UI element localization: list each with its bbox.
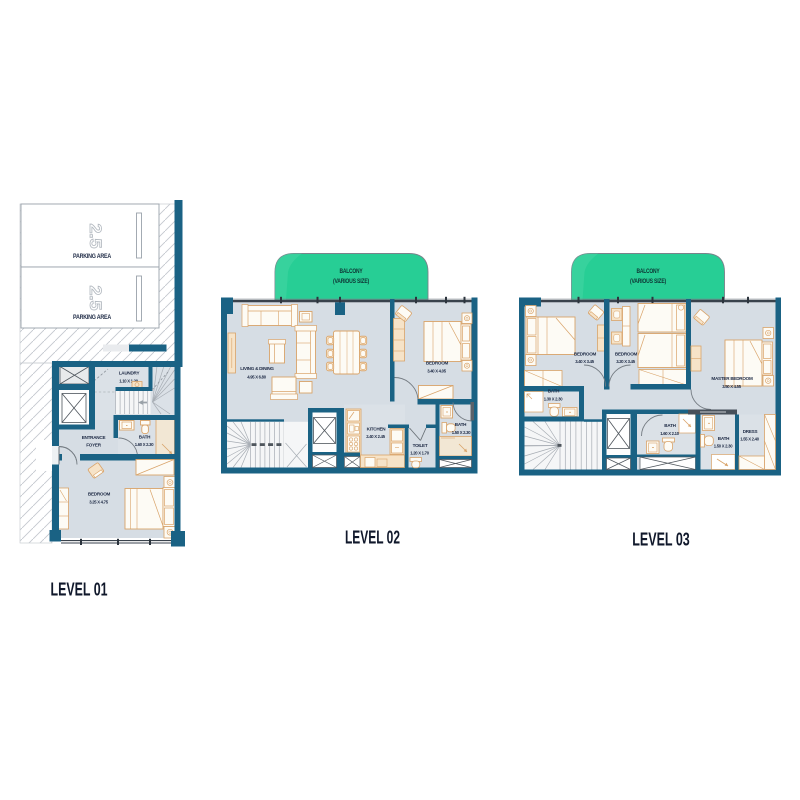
svg-text:TOILET: TOILET <box>413 443 428 448</box>
svg-text:3.20 X 3.45: 3.20 X 3.45 <box>616 359 635 364</box>
svg-text:1.55 X 2.40: 1.55 X 2.40 <box>740 437 759 442</box>
svg-text:LEVEL 01: LEVEL 01 <box>51 580 108 600</box>
svg-text:BATH: BATH <box>548 389 560 394</box>
svg-text:LEVEL 02: LEVEL 02 <box>345 528 400 548</box>
svg-text:(VARIOUS SIZE): (VARIOUS SIZE) <box>333 278 369 285</box>
svg-text:KITCHEN: KITCHEN <box>367 427 387 432</box>
svg-text:2.40 X 2.45: 2.40 X 2.45 <box>366 434 385 439</box>
svg-text:2.5: 2.5 <box>86 224 105 249</box>
svg-text:MASTER BEDROOM: MASTER BEDROOM <box>711 376 753 381</box>
svg-text:1.50 X 2.30: 1.50 X 2.30 <box>714 444 733 449</box>
svg-text:1.20 X 1.70: 1.20 X 1.70 <box>410 451 429 456</box>
svg-text:1.60 X 2.10: 1.60 X 2.10 <box>660 431 679 436</box>
svg-text:BATH: BATH <box>718 436 730 441</box>
svg-text:LAUNDRY: LAUNDRY <box>119 371 140 376</box>
svg-text:2.5: 2.5 <box>86 286 105 311</box>
svg-text:LEVEL 03: LEVEL 03 <box>632 530 690 550</box>
svg-text:3.25 X 4.75: 3.25 X 4.75 <box>89 500 108 505</box>
svg-text:1.30 X 2.30: 1.30 X 2.30 <box>544 397 563 402</box>
svg-text:BALCONY: BALCONY <box>340 268 364 275</box>
svg-text:1.50 X 2.30: 1.50 X 2.30 <box>452 430 471 435</box>
svg-text:BATH: BATH <box>455 422 467 427</box>
svg-text:BATH: BATH <box>139 435 151 440</box>
svg-text:PARKING AREA: PARKING AREA <box>73 254 112 260</box>
svg-text:1.60 X 2.30: 1.60 X 2.30 <box>135 442 154 447</box>
svg-text:DRESS: DRESS <box>743 429 758 434</box>
svg-text:(VARIOUS SIZE): (VARIOUS SIZE) <box>630 278 666 285</box>
svg-text:BALCONY: BALCONY <box>637 268 661 275</box>
svg-text:ENTRANCE: ENTRANCE <box>82 435 106 440</box>
svg-text:4.95 X 6.80: 4.95 X 6.80 <box>247 375 266 380</box>
svg-text:BATH: BATH <box>664 423 676 428</box>
svg-text:3.40 X 3.45: 3.40 X 3.45 <box>575 359 594 364</box>
svg-text:PARKING AREA: PARKING AREA <box>73 315 112 321</box>
svg-text:BEDROOM: BEDROOM <box>615 352 638 357</box>
svg-text:3.40 X 4.05: 3.40 X 4.05 <box>427 369 446 374</box>
svg-text:LIVING & DINING: LIVING & DINING <box>240 366 274 371</box>
svg-text:BEDROOM: BEDROOM <box>574 352 597 357</box>
svg-text:3.50 X 4.55: 3.50 X 4.55 <box>722 384 741 389</box>
svg-text:FOYER: FOYER <box>86 443 102 448</box>
svg-text:BEDROOM: BEDROOM <box>88 492 111 497</box>
svg-text:BEDROOM: BEDROOM <box>426 361 449 366</box>
